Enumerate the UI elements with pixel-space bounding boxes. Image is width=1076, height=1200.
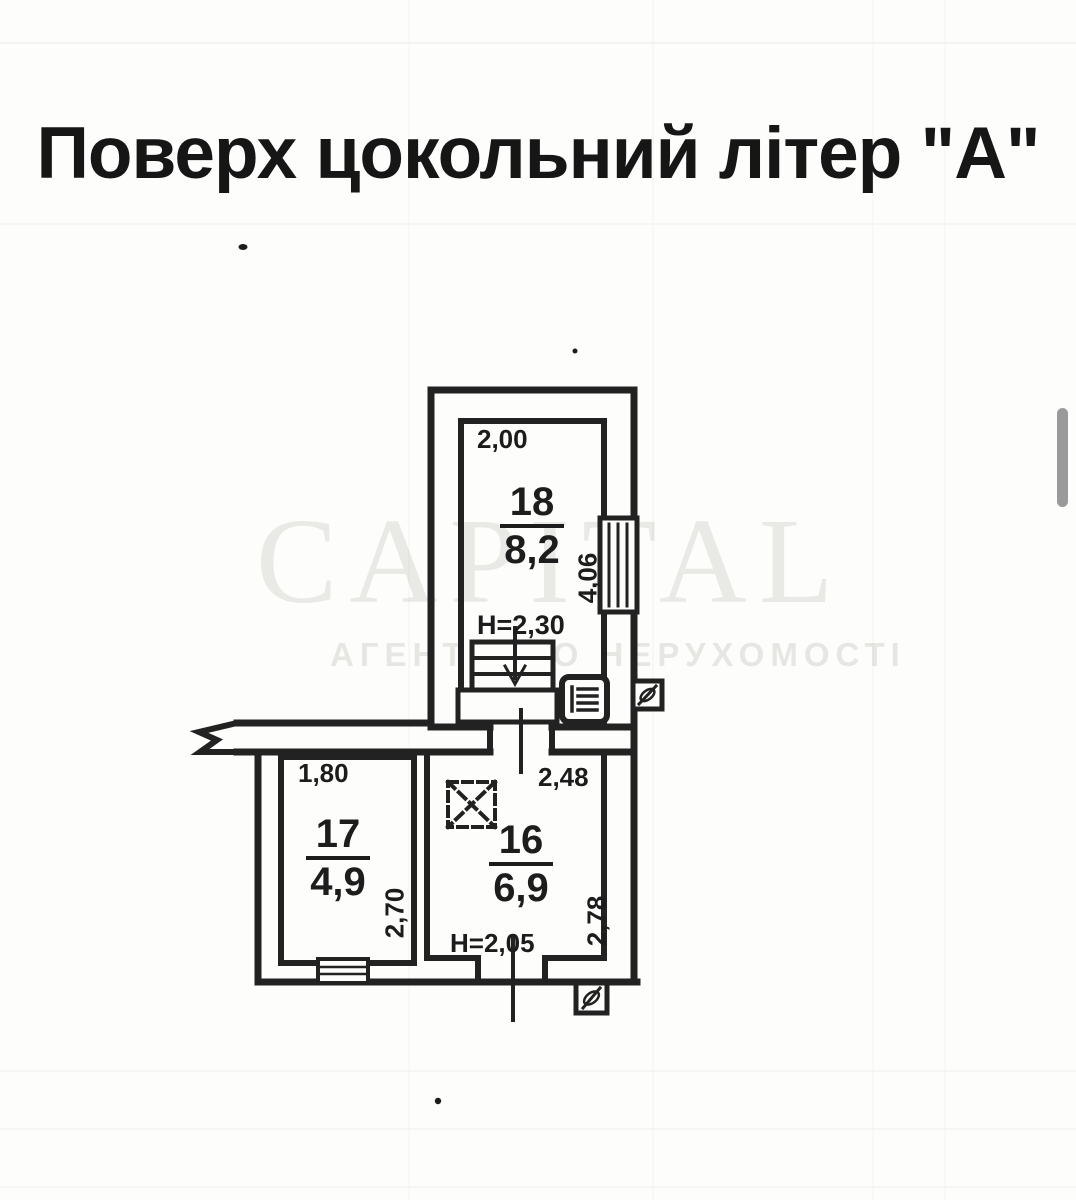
room-17-area: 4,9 (295, 862, 381, 903)
room-18-height-dim: 4,06 (573, 553, 604, 604)
room-17-label: 17 4,9 (295, 814, 381, 903)
room-18-clearance: Н=2,30 (477, 610, 565, 641)
room-17-number: 17 (306, 814, 371, 860)
wall-break-zigzag (199, 723, 237, 752)
room-16-clearance: Н=2,05 (450, 928, 535, 959)
room-17-height-dim: 2,70 (380, 888, 411, 939)
floor-plan-drawing (0, 0, 1076, 1200)
vent-riser-icon-upper (633, 681, 662, 709)
scanned-floorplan-page: CAPITAL АГЕНТСТВО НЕРУХОМОСТІ Поверх цок… (0, 0, 1076, 1200)
room-18-label: 18 8,2 (492, 482, 572, 571)
room-16-number: 16 (489, 820, 554, 866)
room-17-window (318, 959, 368, 983)
vent-riser-icon-lower (576, 983, 607, 1013)
scrollbar-thumb[interactable] (1057, 408, 1068, 507)
stair-window-hatch (600, 518, 637, 612)
room-16-height-dim: 2,78 (582, 896, 613, 947)
room-18-number: 18 (500, 482, 565, 528)
room-18-width-dim: 2,00 (477, 424, 528, 455)
electrical-panel-icon (562, 677, 607, 722)
room-17-width-dim: 1,80 (298, 758, 349, 789)
room-16-label: 16 6,9 (478, 820, 564, 909)
stairs-down (458, 642, 557, 722)
room-16-width-dim: 2,48 (538, 762, 589, 793)
room-18-area: 8,2 (492, 530, 572, 571)
room-16-area: 6,9 (478, 868, 564, 909)
